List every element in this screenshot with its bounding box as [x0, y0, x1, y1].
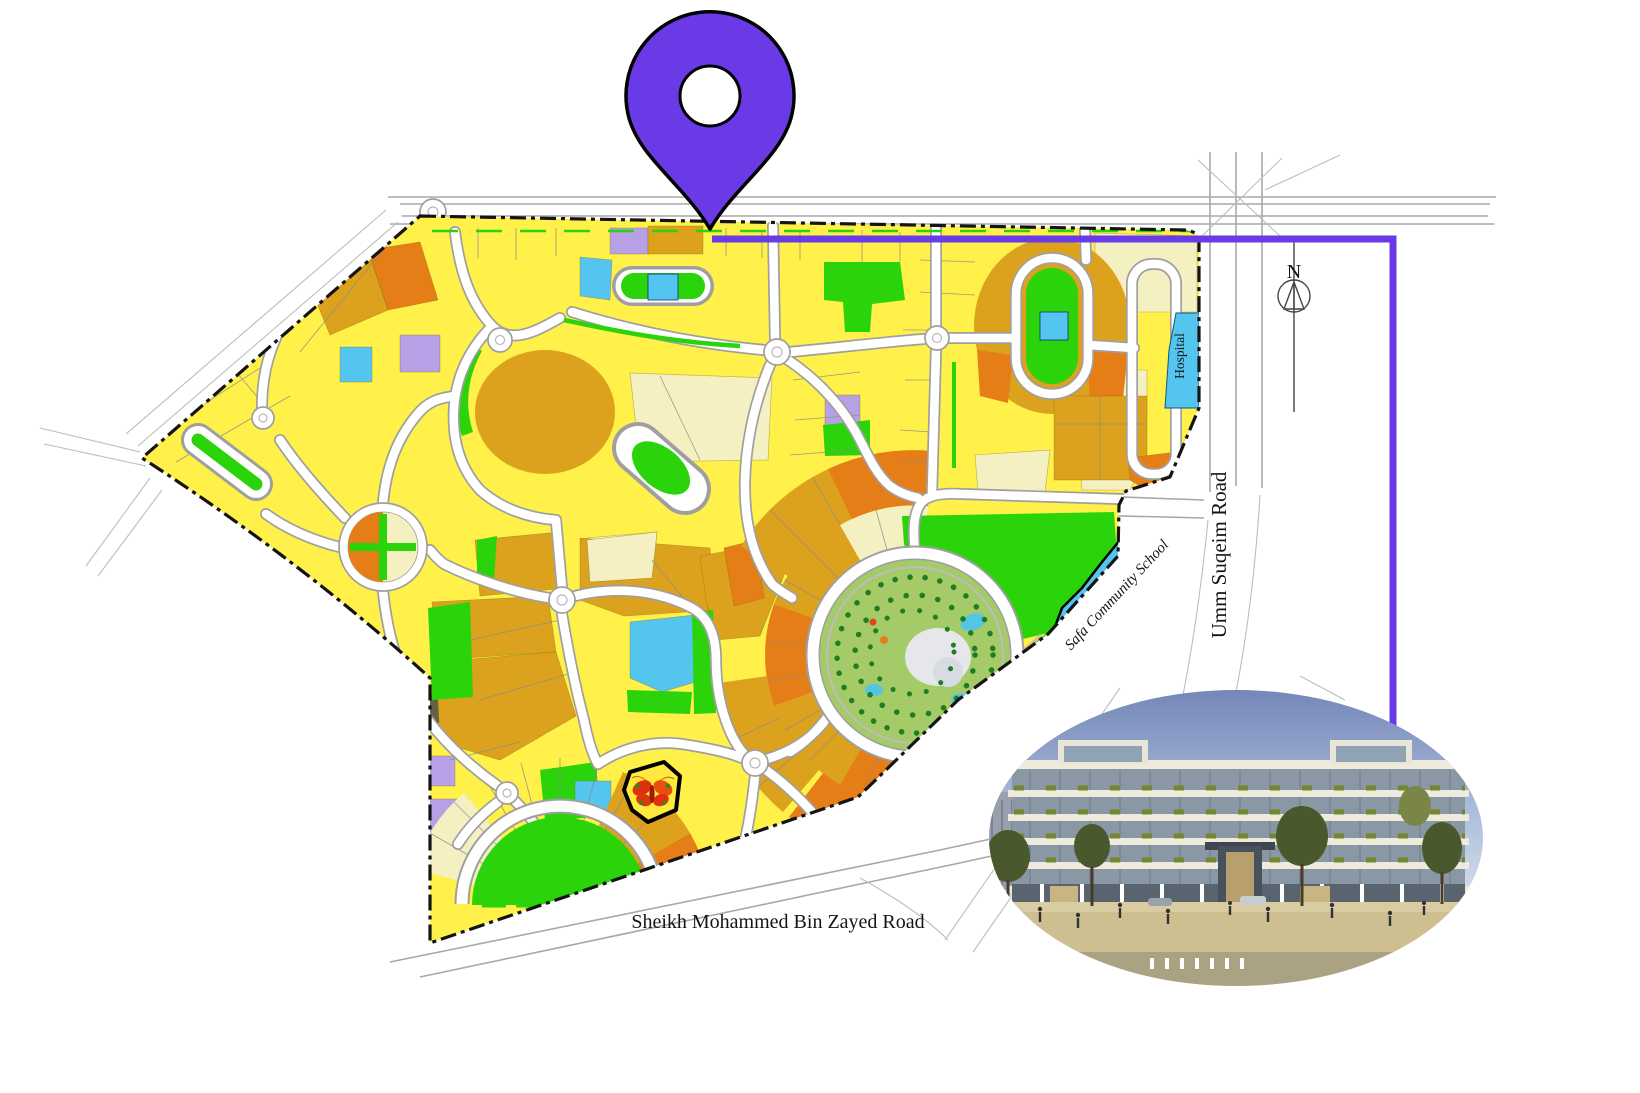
location-map-figure: N: [0, 0, 1640, 1093]
site-plan-map: N: [0, 0, 1640, 1093]
compass-north-label: N: [1287, 261, 1301, 283]
smbz-road-label: Sheikh Mohammed Bin Zayed Road: [631, 911, 924, 933]
umm-suqeim-road-label: Umm Suqeim Road: [1207, 471, 1231, 638]
building-photo-inset: [985, 690, 1483, 986]
hospital-label: Hospital: [1172, 333, 1187, 379]
